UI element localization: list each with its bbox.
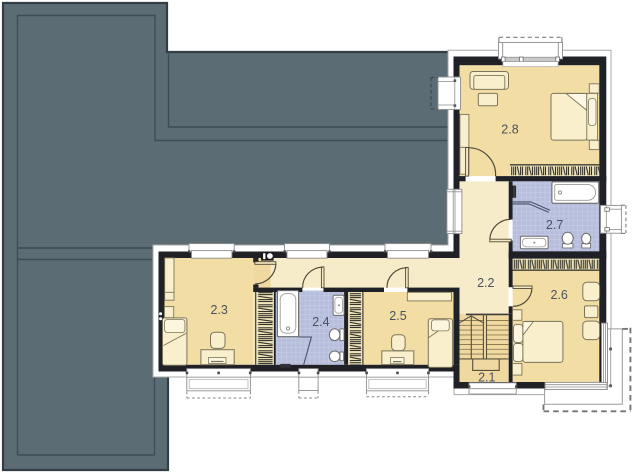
svg-text:2.7: 2.7 <box>546 218 563 232</box>
svg-text:2.6: 2.6 <box>551 288 568 302</box>
svg-text:2.3: 2.3 <box>211 303 228 317</box>
svg-text:2.8: 2.8 <box>501 122 518 136</box>
svg-text:2.5: 2.5 <box>389 309 406 323</box>
svg-text:2.2: 2.2 <box>477 276 494 290</box>
svg-text:2.4: 2.4 <box>312 315 329 329</box>
svg-text:2.1: 2.1 <box>478 370 495 384</box>
